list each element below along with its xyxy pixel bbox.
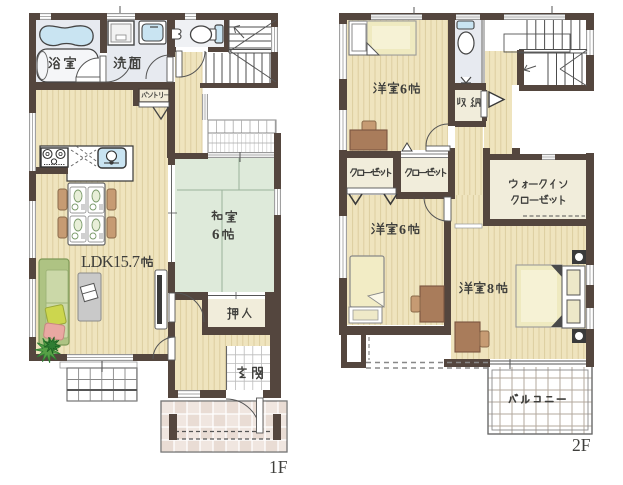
svg-text:8: 8	[487, 282, 494, 297]
svg-text:6: 6	[399, 223, 406, 238]
svg-text:6: 6	[212, 227, 220, 243]
svg-text:LDK15.7: LDK15.7	[81, 252, 140, 271]
svg-text:6: 6	[400, 83, 407, 98]
svg-text:2F: 2F	[572, 435, 591, 455]
svg-text:1F: 1F	[269, 457, 288, 477]
